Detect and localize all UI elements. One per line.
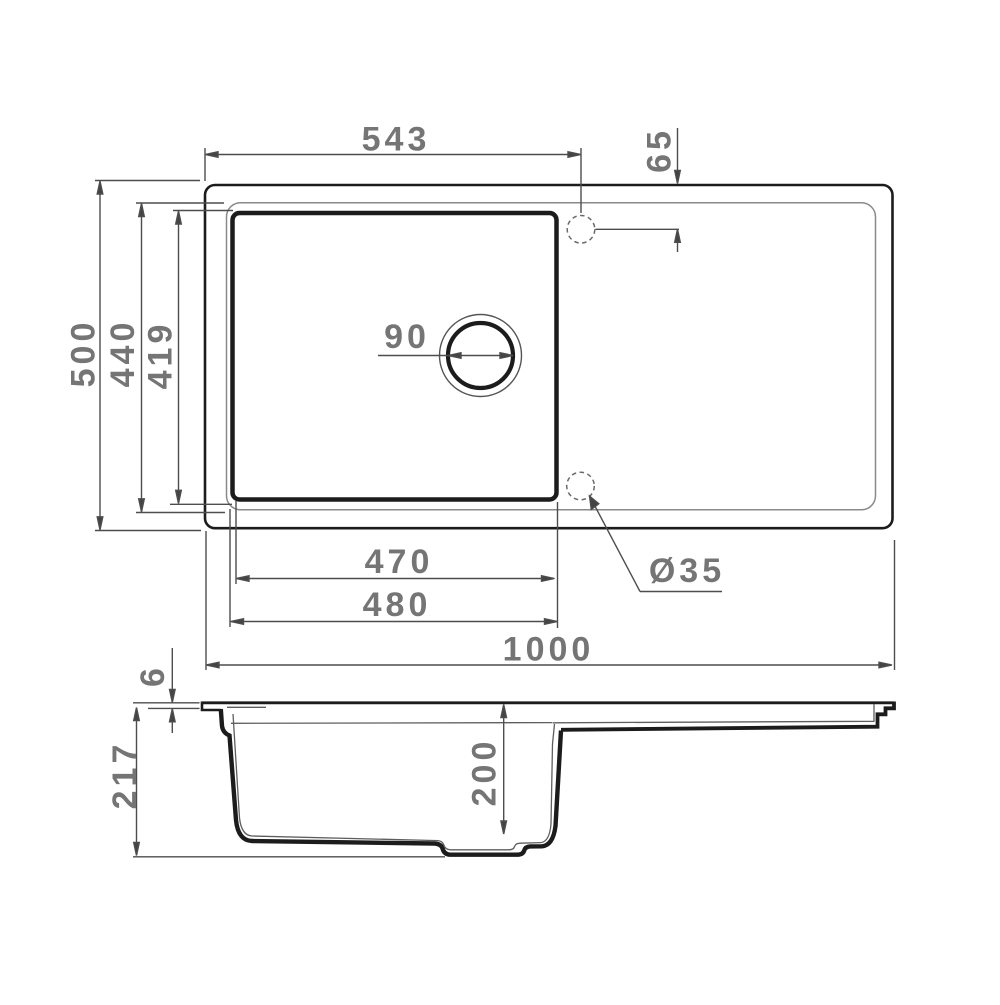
svg-text:Ø35: Ø35 [649,552,725,590]
svg-text:470: 470 [365,543,434,581]
svg-text:1000: 1000 [503,631,595,669]
svg-text:480: 480 [363,586,432,624]
svg-text:90: 90 [384,318,430,356]
svg-text:419: 419 [142,321,180,390]
svg-text:543: 543 [362,121,431,159]
svg-text:217: 217 [106,741,144,810]
svg-text:6: 6 [134,664,172,687]
svg-text:440: 440 [104,319,142,388]
svg-text:500: 500 [65,319,103,388]
svg-text:200: 200 [466,738,504,807]
svg-text:65: 65 [641,127,679,173]
